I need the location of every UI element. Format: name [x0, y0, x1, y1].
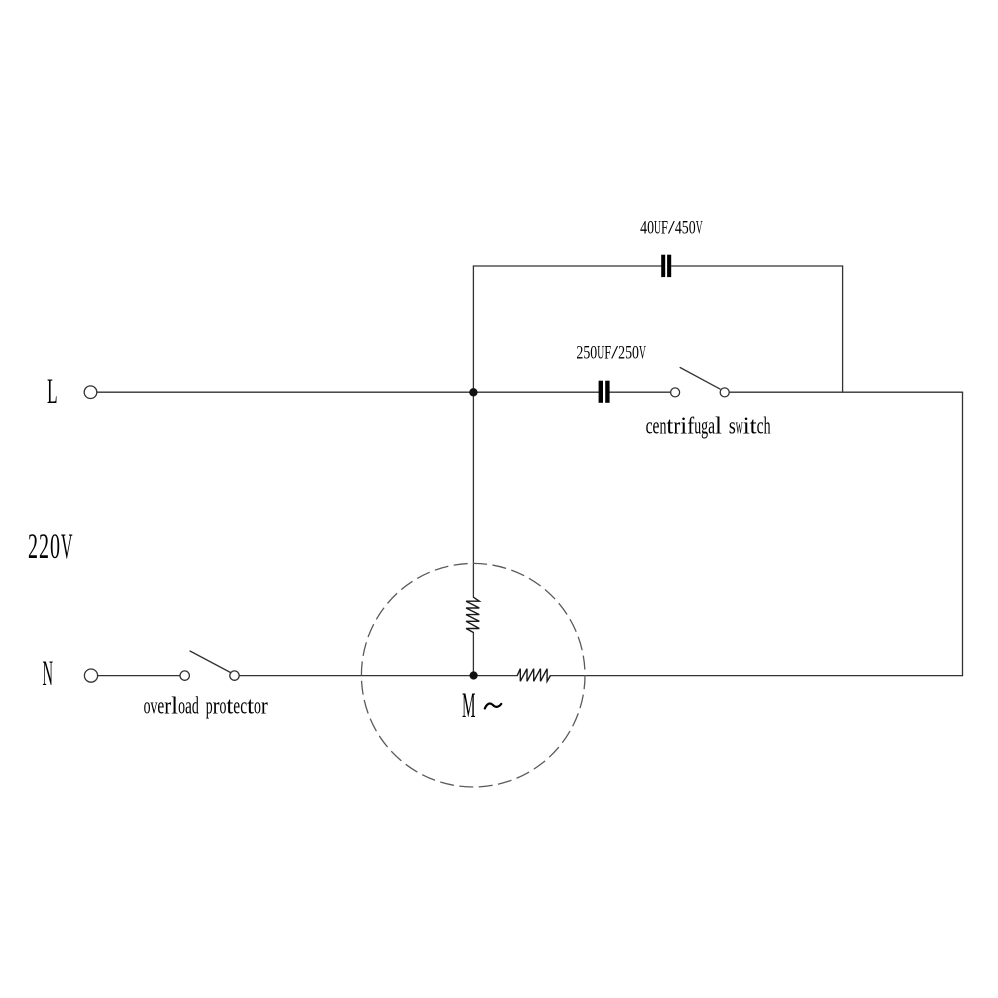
svg-text:0: 0: [590, 343, 597, 364]
svg-text:M: M: [462, 685, 476, 725]
svg-text:n: n: [660, 414, 667, 440]
svg-text:L: L: [47, 371, 58, 411]
svg-text:2: 2: [576, 343, 583, 364]
svg-text:5: 5: [682, 218, 689, 239]
svg-text:l: l: [715, 414, 722, 440]
svg-text:V: V: [61, 526, 73, 566]
svg-text:N: N: [43, 653, 54, 693]
svg-text:r: r: [261, 694, 268, 720]
svg-text:d: d: [192, 694, 199, 720]
svg-text:2: 2: [39, 526, 49, 566]
svg-text:V: V: [639, 343, 646, 364]
svg-text:v: v: [151, 694, 158, 720]
svg-text:5: 5: [583, 343, 590, 364]
svg-text:e: e: [653, 414, 660, 440]
svg-text:e: e: [157, 694, 164, 720]
svg-text:r: r: [673, 414, 680, 440]
svg-text:o: o: [220, 694, 227, 720]
svg-text:V: V: [696, 218, 703, 239]
svg-text:o: o: [144, 694, 151, 720]
svg-text:0: 0: [647, 218, 654, 239]
svg-text:5: 5: [625, 343, 632, 364]
svg-text:p: p: [206, 694, 213, 720]
svg-text:2: 2: [28, 526, 38, 566]
svg-text:o: o: [254, 694, 261, 720]
svg-text:0: 0: [50, 526, 60, 566]
svg-text:u: u: [694, 414, 701, 440]
svg-text:c: c: [757, 414, 764, 440]
svg-text:s: s: [729, 414, 736, 440]
svg-text:h: h: [764, 414, 771, 440]
svg-text:0: 0: [632, 343, 639, 364]
svg-text:e: e: [233, 694, 240, 720]
svg-text:F: F: [604, 343, 611, 364]
svg-text:o: o: [178, 694, 185, 720]
svg-text:r: r: [164, 694, 171, 720]
svg-text:r: r: [213, 694, 220, 720]
svg-text:c: c: [240, 694, 247, 720]
svg-text:f: f: [687, 414, 694, 440]
svg-text:2: 2: [618, 343, 625, 364]
svg-text:g: g: [701, 414, 708, 440]
svg-text:c: c: [646, 414, 653, 440]
